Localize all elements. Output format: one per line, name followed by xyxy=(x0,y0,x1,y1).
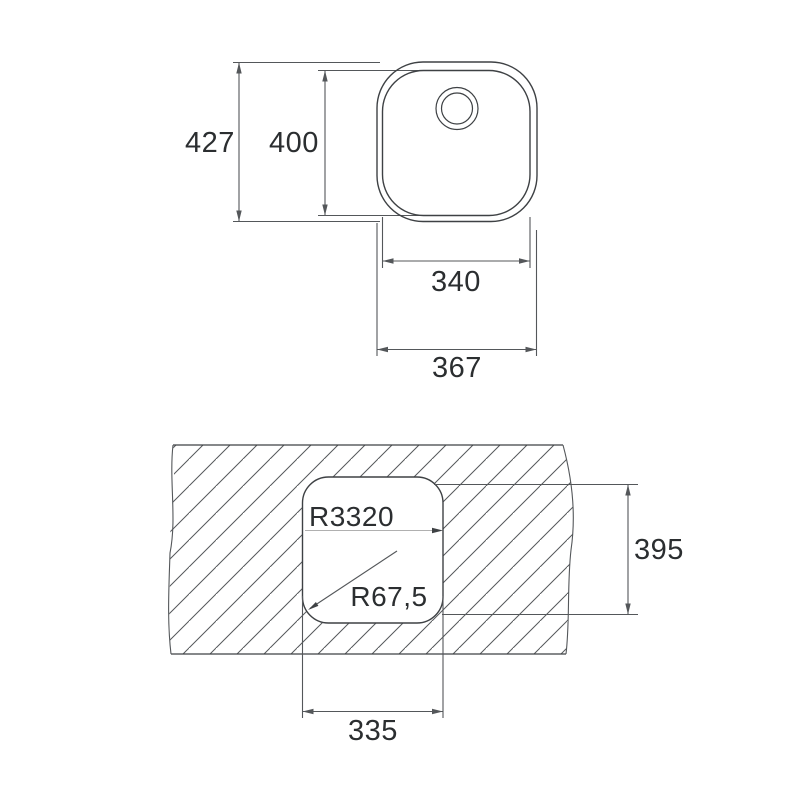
dim-427: 427 xyxy=(185,63,242,222)
top-view-drawing: 427 400 340 xyxy=(185,62,537,384)
dim-label-bowl-width: 340 xyxy=(431,266,481,298)
sink-dimension-drawing: 427 400 340 xyxy=(0,0,800,800)
dim-label-cutout-height: 395 xyxy=(634,534,684,566)
dim-label-total-height: 427 xyxy=(185,127,235,159)
radius-label-large: R3320 xyxy=(309,501,394,532)
drawing-canvas: 427 400 340 xyxy=(0,0,800,800)
radius-label-corner: R67,5 xyxy=(350,581,427,612)
dim-400: 400 xyxy=(269,71,328,216)
drain-icon xyxy=(436,88,478,130)
sink-outline xyxy=(377,62,537,222)
dim-label-total-width: 367 xyxy=(432,352,482,384)
top-view-extension-lines xyxy=(233,63,445,222)
cutout-view-drawing: R3320 R67,5 395 335 xyxy=(169,445,684,747)
dim-340: 340 xyxy=(383,217,531,298)
dim-367: 367 xyxy=(377,223,537,384)
dim-label-bowl-height: 400 xyxy=(269,127,319,159)
dim-label-cutout-width: 335 xyxy=(348,715,398,747)
